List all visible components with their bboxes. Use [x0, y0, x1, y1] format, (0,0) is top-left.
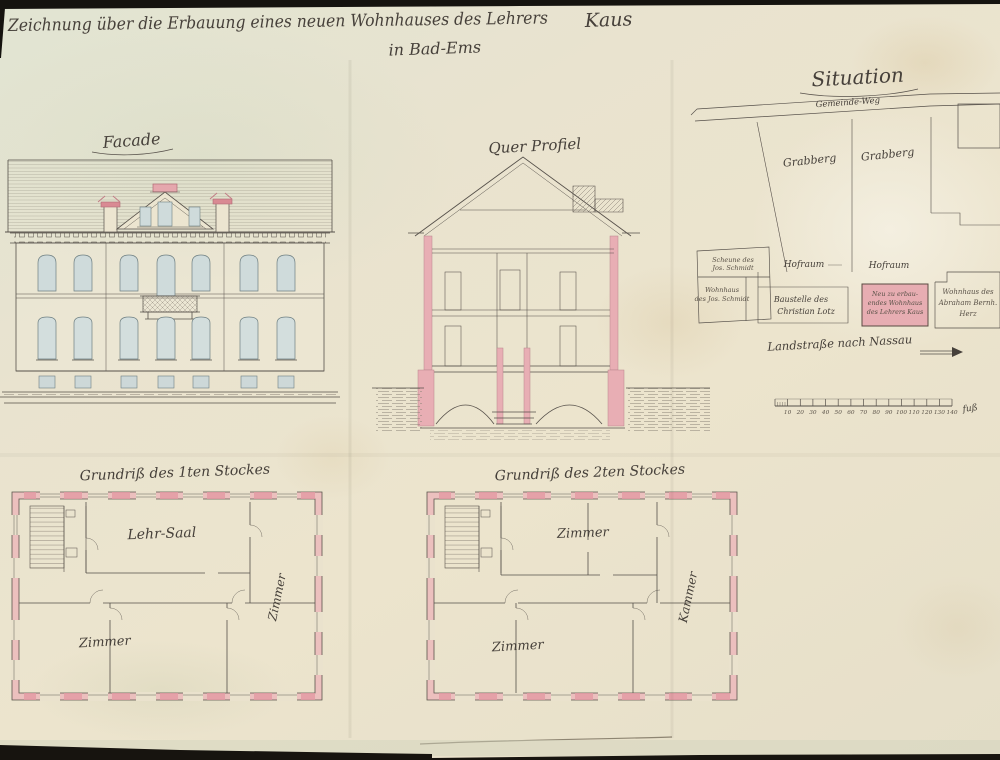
facade-basement-windows [39, 376, 294, 388]
sheet-title-name: Kaus [583, 8, 632, 32]
scale-bar: 10 20 30 40 50 60 70 80 90 100 110 120 1… [775, 399, 978, 416]
herz-label: Herz [958, 310, 977, 318]
parcel-label: Grabberg [860, 145, 915, 164]
sheet-title-line2: in Bad-Ems [388, 37, 481, 59]
scale-tick: 100 [896, 410, 907, 416]
scale-tick: 140 [947, 410, 958, 416]
scale-tick: 110 [909, 410, 920, 416]
baustelle-label: Baustelle des [773, 295, 828, 304]
scale-unit: fuß [961, 403, 978, 415]
section-label: Quer Profiel [488, 135, 582, 158]
herz-label: Wohnhaus des [942, 288, 994, 296]
stairs [30, 506, 64, 568]
direction-arrow [952, 347, 963, 357]
scale-tick: 50 [835, 410, 843, 416]
scale-tick: 30 [809, 410, 817, 416]
new-house-label: endes Wohnhaus [868, 299, 923, 307]
hofraum-label: Hofraum [868, 261, 910, 271]
plan-canvas: Zeichnung über die Erbauung eines neuen … [0, 0, 1000, 760]
room-label-zimmer: Zimmer [78, 634, 132, 652]
scale-tick: 130 [934, 410, 945, 416]
sheet-title-line1: Zeichnung über die Erbauung eines neuen … [7, 8, 548, 36]
hofraum-label: Hofraum [783, 260, 825, 270]
herz-label: Abraham Bernh. [938, 299, 997, 307]
scale-tick: 70 [860, 410, 868, 416]
facade-drawing: Facade [0, 129, 340, 403]
room-label-lehrsaal: Lehr-Saal [126, 525, 196, 543]
new-house-label: Neu zu erbau- [871, 290, 918, 298]
plan2-label: Grundriß des 2ten Stockes [494, 462, 685, 485]
plan1-label: Grundriß des 1ten Stockes [79, 462, 270, 485]
room-label-zimmer: Zimmer [556, 525, 610, 542]
scale-tick: 20 [796, 410, 805, 416]
scale-tick: 10 [784, 410, 792, 416]
section-doors [445, 270, 576, 366]
new-house-label: des Lehrers Kaus [867, 308, 924, 316]
schmidt-house-label: des Jos. Schmidt [695, 295, 750, 303]
scale-tick: 40 [821, 410, 830, 416]
stairs [445, 506, 479, 568]
situation-title: Situation [811, 63, 904, 92]
scale-tick: 80 [873, 410, 881, 416]
scale-tick: 120 [921, 410, 932, 416]
baustelle-label: Christian Lotz [777, 307, 835, 316]
floor-plan-first: Grundriß des 1ten Stockes [11, 462, 323, 701]
scale-tick: 90 [885, 410, 893, 416]
title-block: Zeichnung über die Erbauung eines neuen … [7, 8, 633, 59]
scheune-label: Scheune des [712, 256, 754, 264]
room-label-zimmer-vertical: Zimmer [265, 571, 289, 623]
facade-lower-windows [38, 317, 295, 359]
scheune-label: Jos. Schmidt [710, 264, 754, 272]
facade-label: Facade [101, 129, 161, 152]
situation-plan: Situation Gemeinde-Weg Grabberg Grabberg… [691, 63, 1000, 416]
floor-plan-second: Grundriß des 2ten Stockes Zimmer Zimmer [426, 462, 738, 701]
road-top-label: Gemeinde-Weg [815, 96, 881, 111]
room-label-kammer-vertical: Kammer [676, 569, 701, 625]
section-drawing: Quer Profiel [372, 135, 710, 440]
scale-tick: 60 [847, 410, 855, 416]
schmidt-house-label: Wohnhaus [705, 286, 740, 294]
parcel-label: Grabberg [782, 151, 837, 170]
facade-upper-windows [38, 255, 295, 296]
road-bottom-label: Landstraße nach Nassau [766, 332, 913, 354]
drawing-sheet: Zeichnung über die Erbauung eines neuen … [0, 0, 1000, 760]
room-label-zimmer: Zimmer [491, 638, 545, 656]
